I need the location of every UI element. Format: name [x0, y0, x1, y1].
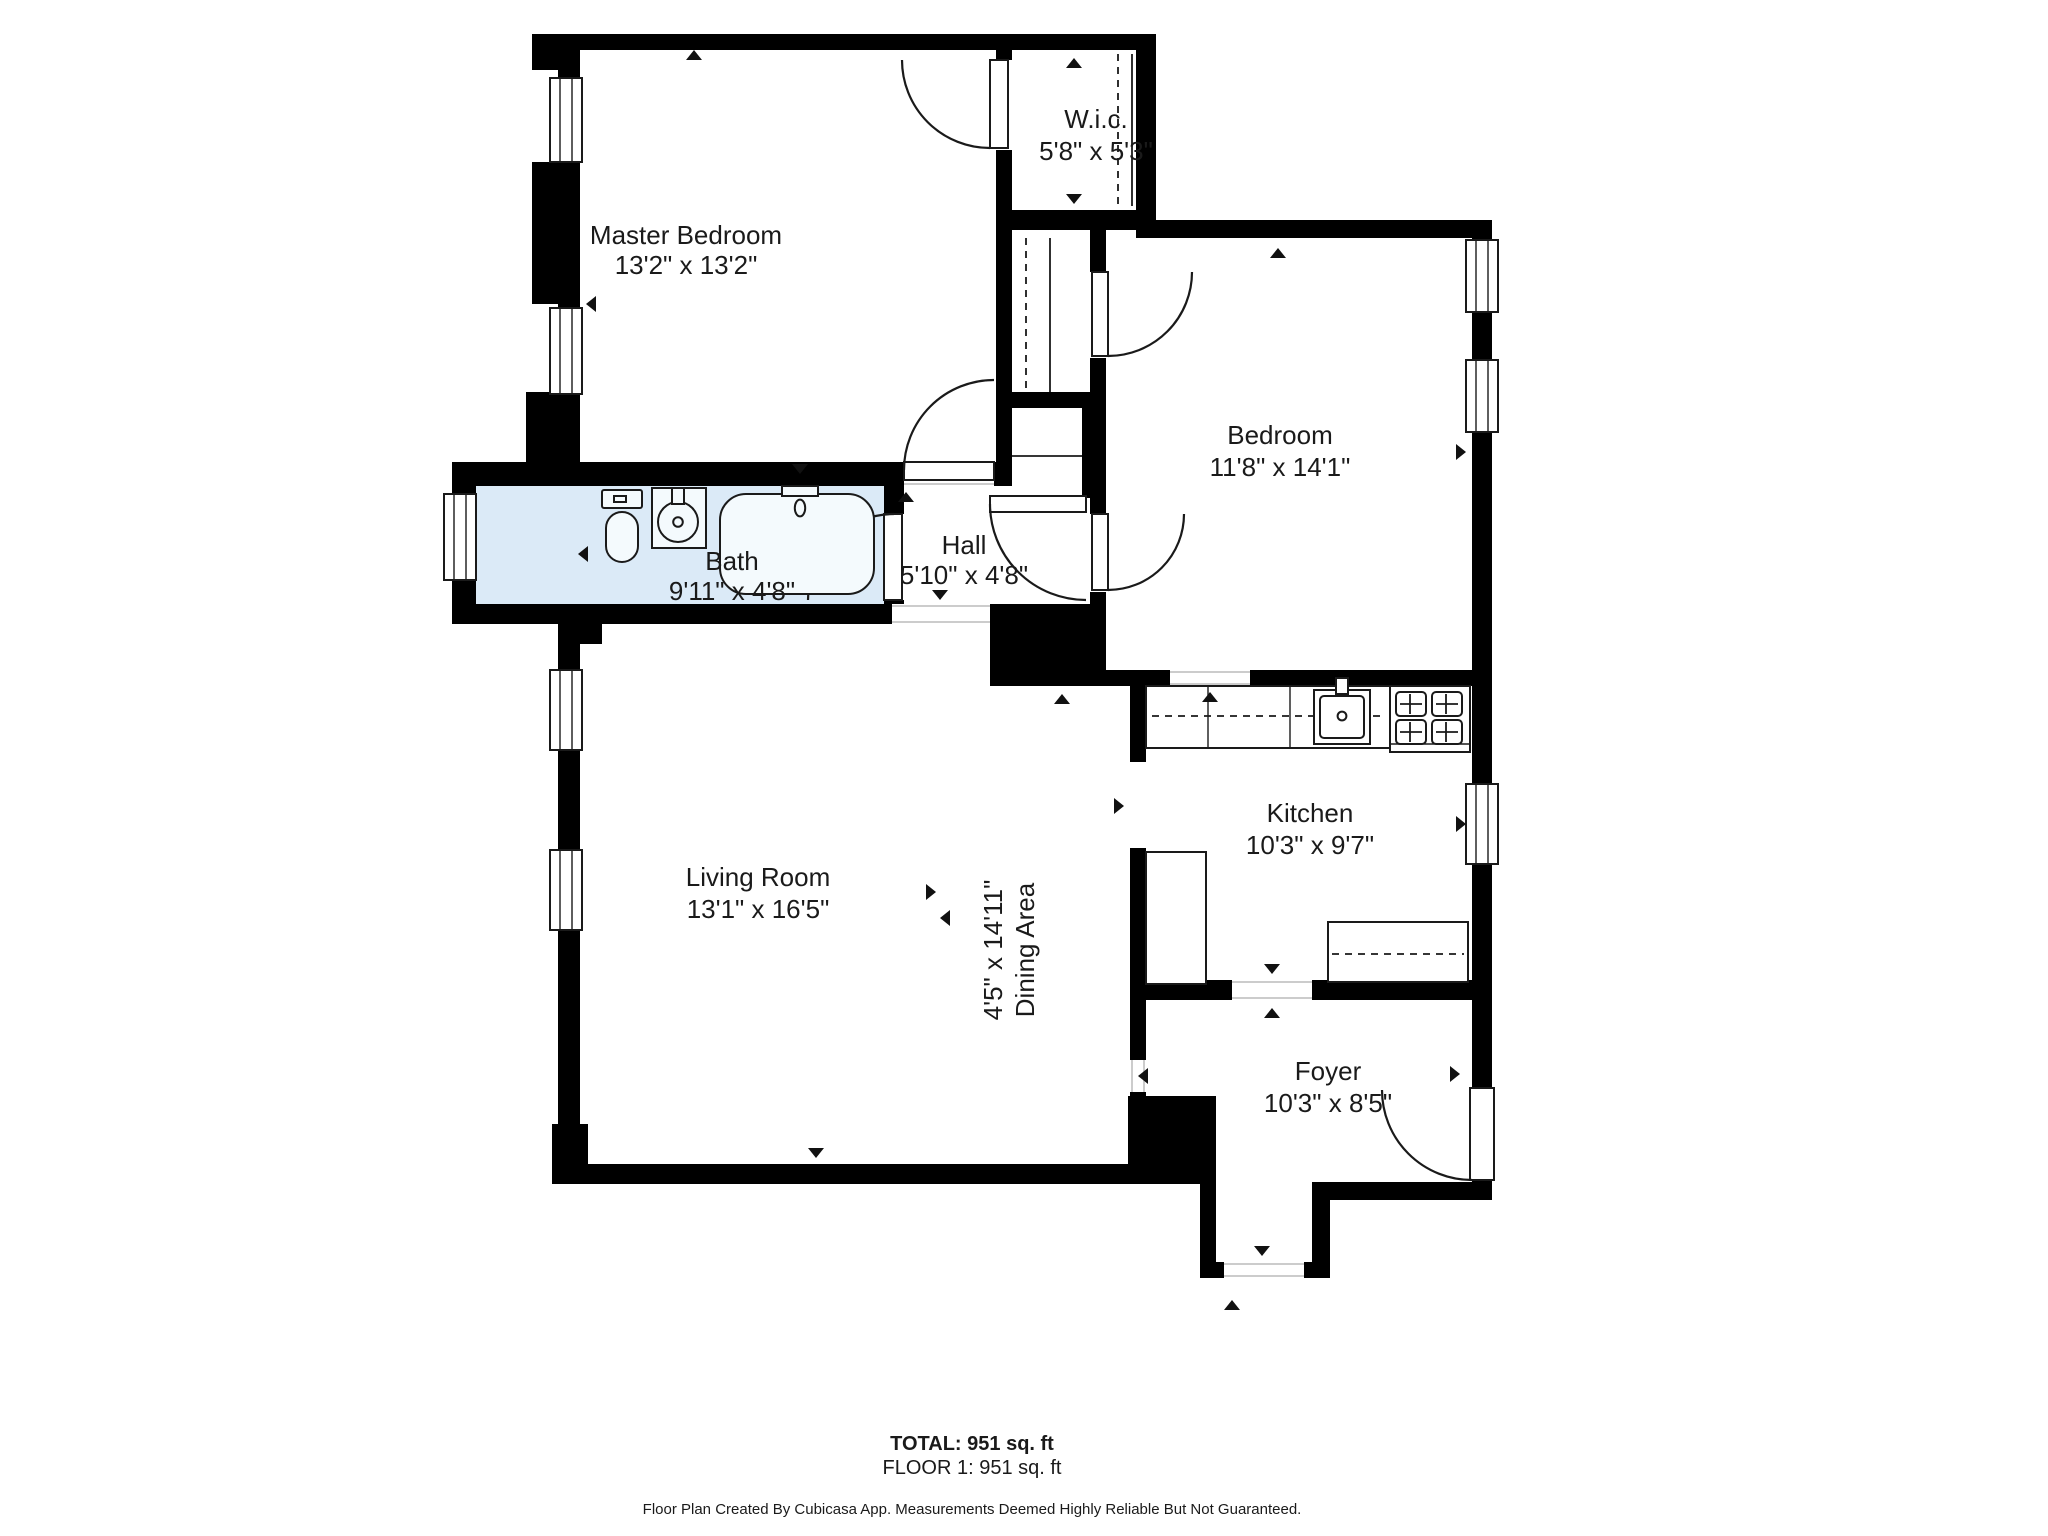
- label-master-bedroom: Master Bedroom: [590, 220, 782, 250]
- window: [550, 78, 582, 162]
- label-dining-area: Dining Area: [1010, 882, 1040, 1017]
- dims-master-bedroom: 13'2" x 13'2": [615, 250, 758, 280]
- refrigerator: [1146, 852, 1206, 984]
- door-master-wic: [902, 60, 1008, 148]
- stove: [1390, 686, 1470, 752]
- floorplan-svg: Master Bedroom 13'2" x 13'2" W.i.c. 5'8"…: [0, 0, 2048, 1536]
- label-foyer: Foyer: [1295, 1056, 1362, 1086]
- bathroom-sink: [652, 488, 706, 548]
- kitchen-counter-2: [1328, 922, 1468, 982]
- label-hall: Hall: [942, 530, 987, 560]
- label-living-room: Living Room: [686, 862, 831, 892]
- door-entry: [1382, 1088, 1494, 1180]
- window: [550, 670, 582, 750]
- window: [1466, 784, 1498, 864]
- window: [1466, 240, 1498, 312]
- label-bath: Bath: [705, 546, 759, 576]
- dims-bath: 9'11" x 4'8": [669, 576, 795, 606]
- label-kitchen: Kitchen: [1267, 798, 1354, 828]
- window: [550, 308, 582, 394]
- dims-living-room: 13'1" x 16'5": [687, 894, 830, 924]
- footer: TOTAL: 951 sq. ft FLOOR 1: 951 sq. ft Fl…: [643, 1433, 1302, 1518]
- door-master-hall: [904, 380, 994, 480]
- dims-dining-area: 4'5" x 14'11": [978, 880, 1008, 1021]
- dims-bedroom: 11'8" x 14'1": [1210, 452, 1351, 482]
- dims-wic: 5'8" x 5'3": [1039, 136, 1153, 166]
- window: [550, 850, 582, 930]
- toilet: [602, 490, 642, 562]
- wall-openings: [884, 60, 1492, 1278]
- label-wic: W.i.c.: [1064, 104, 1128, 134]
- label-bedroom: Bedroom: [1227, 420, 1333, 450]
- window: [1466, 360, 1498, 432]
- door-bedroom: [1092, 514, 1184, 590]
- dims-foyer: 10'3" x 8'5": [1264, 1088, 1392, 1118]
- window: [444, 494, 476, 580]
- dims-hall: 5'10" x 4'8": [900, 560, 1028, 590]
- total-area-text: TOTAL: 951 sq. ft: [890, 1433, 1054, 1455]
- floorplan-page: Master Bedroom 13'2" x 13'2" W.i.c. 5'8"…: [0, 0, 2048, 1536]
- dims-kitchen: 10'3" x 9'7": [1246, 830, 1374, 860]
- disclaimer-text: Floor Plan Created By Cubicasa App. Meas…: [643, 1501, 1302, 1518]
- floor-area-text: FLOOR 1: 951 sq. ft: [883, 1457, 1062, 1479]
- door-bedroom-closet: [1092, 272, 1192, 356]
